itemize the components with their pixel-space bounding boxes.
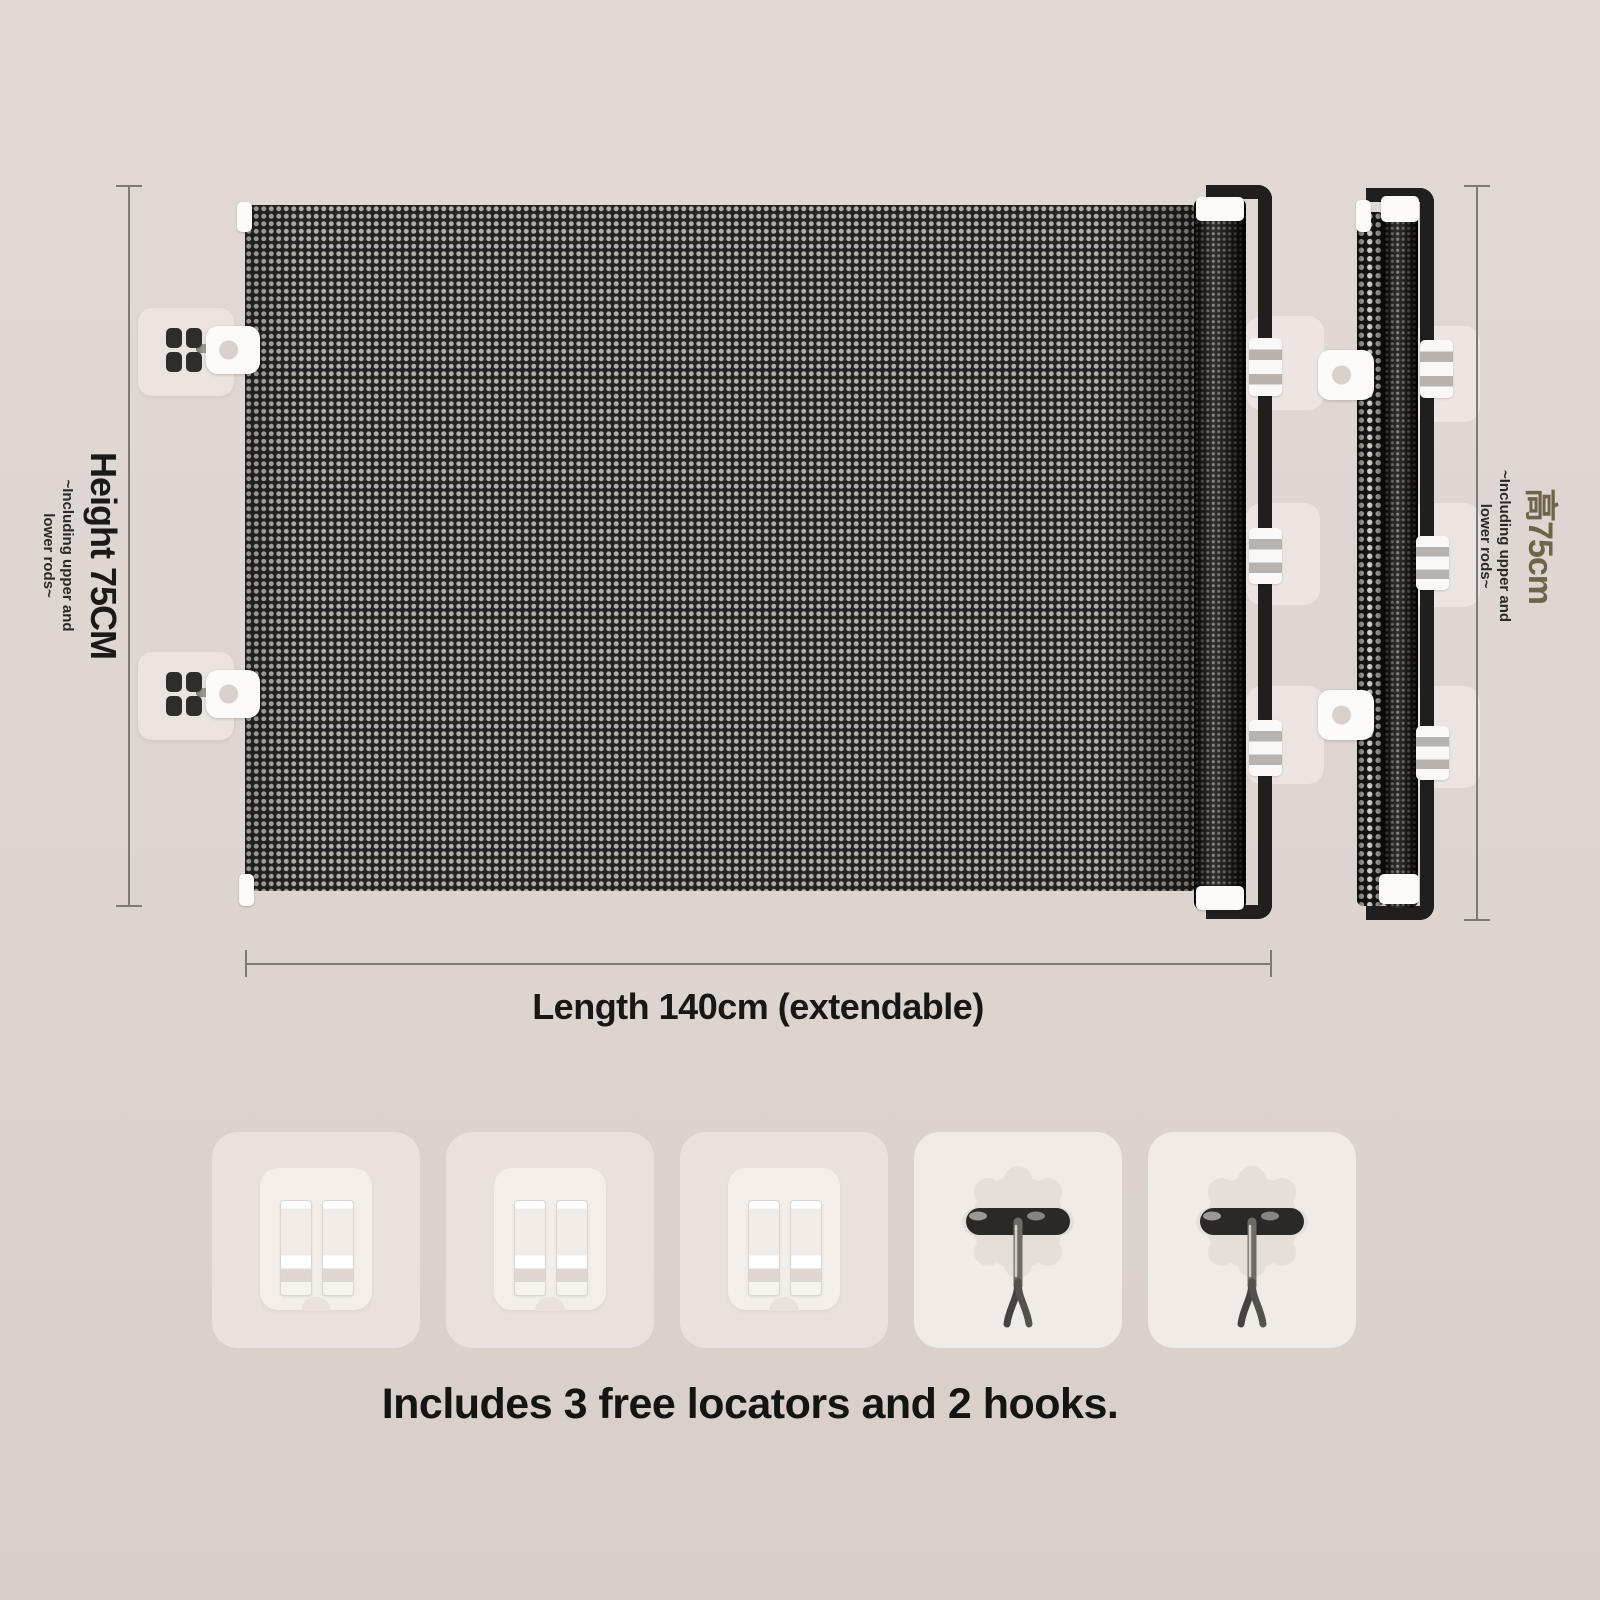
locator-adhesive-pad bbox=[728, 1168, 840, 1310]
roller-tube-rolled bbox=[1384, 198, 1418, 908]
dimension-cap bbox=[116, 185, 142, 187]
mesh-corner-tab-top bbox=[237, 202, 252, 232]
rolled-mesh-edge bbox=[1357, 212, 1384, 906]
height-note-left: ~Including upper and lower rods~ bbox=[39, 479, 77, 631]
frame-clip bbox=[1249, 528, 1282, 584]
length-dimension-line bbox=[246, 963, 1272, 965]
strap-eyelet-lower bbox=[206, 670, 260, 718]
strap-eyelet bbox=[1318, 690, 1374, 740]
rolled-cap-top bbox=[1381, 196, 1419, 222]
locator-pad-notch bbox=[535, 1297, 565, 1311]
locator-clip bbox=[514, 1200, 546, 1296]
locator-clip bbox=[280, 1200, 312, 1296]
roller-cap-top bbox=[1196, 197, 1244, 221]
height-label-right: 高75cm bbox=[1519, 488, 1568, 604]
height-note-right-line2: lower rods~ bbox=[1476, 470, 1495, 622]
locator-pad-notch bbox=[769, 1297, 799, 1311]
caption: Includes 3 free locators and 2 hooks. bbox=[200, 1380, 1300, 1429]
rolled-edge-cap bbox=[1356, 200, 1371, 232]
dimension-cap bbox=[1464, 185, 1490, 187]
frame-clip bbox=[1416, 536, 1449, 590]
dimension-tick bbox=[1270, 950, 1272, 977]
mesh-corner-tab-bottom bbox=[239, 874, 254, 906]
accessory-tile-hook bbox=[1148, 1132, 1356, 1348]
locator-clip bbox=[790, 1200, 822, 1296]
height-note-right-line1: ~Including upper and bbox=[1494, 470, 1513, 622]
product-diagram: Height 75CM ~Including upper and lower r… bbox=[0, 0, 1600, 1600]
dimension-cap bbox=[1464, 919, 1490, 921]
height-note-left-line1: ~Including upper and bbox=[57, 479, 76, 631]
locator-adhesive-pad bbox=[494, 1168, 606, 1310]
rolled-cap-bottom bbox=[1379, 874, 1419, 904]
hook-icon bbox=[948, 1144, 1088, 1334]
locator-clip bbox=[748, 1200, 780, 1296]
mesh-surface bbox=[245, 205, 1195, 891]
roller-cap-bottom bbox=[1196, 886, 1244, 910]
accessory-tile-locator bbox=[212, 1132, 420, 1348]
locator-pad-notch bbox=[301, 1297, 331, 1311]
height-label-left: Height 75CM bbox=[82, 452, 124, 659]
accessory-row bbox=[212, 1132, 1356, 1348]
mount-clip-icon-upper bbox=[166, 328, 202, 372]
length-label: Length 140cm (extendable) bbox=[300, 986, 1216, 1028]
roller-tube-main bbox=[1194, 198, 1246, 910]
height-dimension-line-left bbox=[128, 186, 130, 906]
frame-clip bbox=[1249, 720, 1282, 776]
accessory-tile-locator bbox=[446, 1132, 654, 1348]
height-note-left-line2: lower rods~ bbox=[39, 479, 58, 631]
dimension-cap bbox=[116, 905, 142, 907]
locator-clip bbox=[322, 1200, 354, 1296]
locator-clip bbox=[556, 1200, 588, 1296]
height-note-right: ~Including upper and lower rods~ bbox=[1476, 470, 1514, 622]
strap-eyelet-upper bbox=[206, 326, 260, 374]
hook-icon bbox=[1182, 1144, 1322, 1334]
strap-eyelet bbox=[1318, 350, 1374, 400]
accessory-tile-hook bbox=[914, 1132, 1122, 1348]
locator-adhesive-pad bbox=[260, 1168, 372, 1310]
accessory-tile-locator bbox=[680, 1132, 888, 1348]
frame-clip bbox=[1249, 338, 1282, 396]
frame-clip bbox=[1416, 726, 1449, 780]
dimension-tick bbox=[245, 950, 247, 977]
frame-clip bbox=[1420, 340, 1453, 398]
mount-clip-icon-lower bbox=[166, 672, 202, 716]
